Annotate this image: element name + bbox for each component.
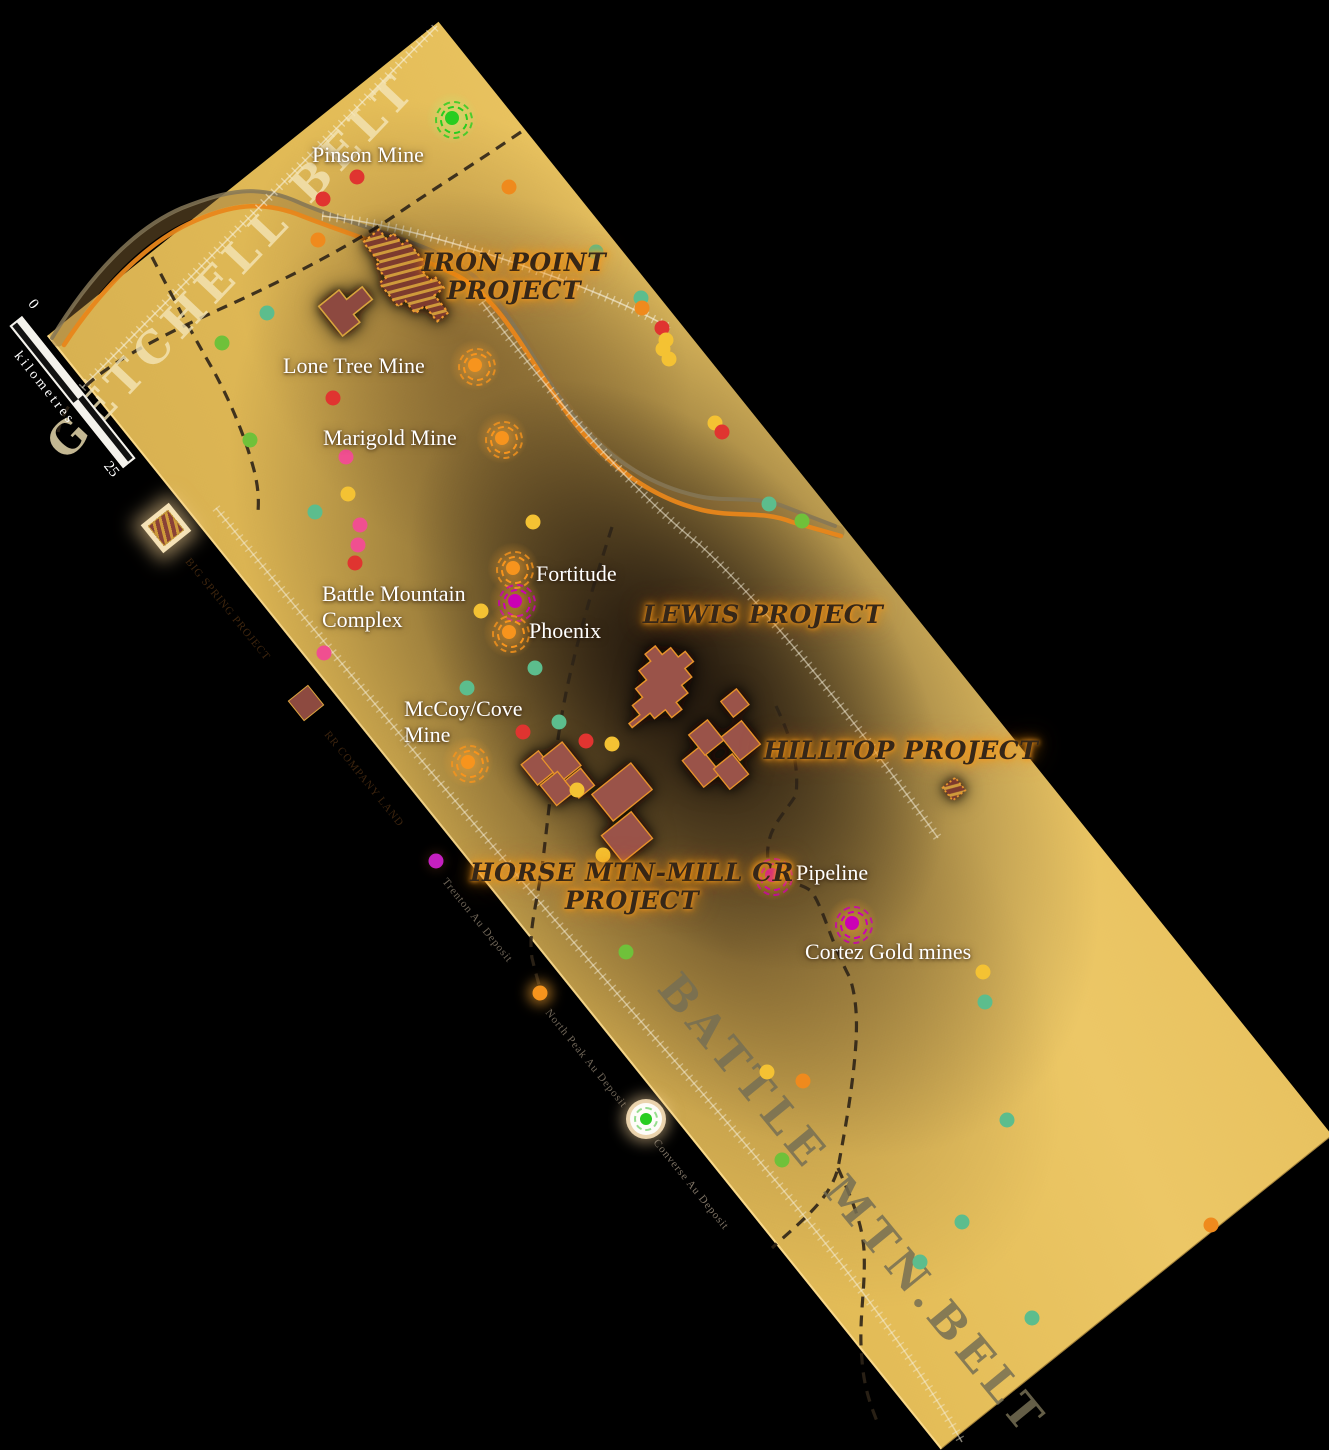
mccoy-cove-label: McCoy/CoveMine <box>404 696 523 749</box>
deposit-dot-red <box>348 556 363 571</box>
deposit-dot-orange <box>311 233 326 248</box>
deposit-dot-teal <box>528 661 543 676</box>
marker-core <box>506 561 520 575</box>
deposit-dot-teal <box>460 681 475 696</box>
deposit-dot-teal <box>762 497 777 512</box>
deposit-dot-teal <box>955 1215 970 1230</box>
marker-core <box>468 358 482 372</box>
horse-mtn-mill-cr-project-label: HORSE MTN-MILL CRPROJECT <box>470 859 794 915</box>
deposit-dot-green <box>795 514 810 529</box>
marigold-label: Marigold Mine <box>323 425 457 451</box>
deposit-dot-red <box>326 391 341 406</box>
deposit-dot-teal <box>552 715 567 730</box>
lewis-claims[interactable] <box>601 634 712 741</box>
deposit-dot-green <box>215 336 230 351</box>
deposit-dot-pink <box>339 450 354 465</box>
marker-core <box>461 755 475 769</box>
deposit-dot-red <box>350 170 365 185</box>
deposit-dot-orange <box>635 301 650 316</box>
disc-center <box>640 1113 652 1125</box>
map-canvas: GETCHELL BELTBATTLE MTN.BELTPinson MineL… <box>0 0 1329 1450</box>
deposit-dot-yellow <box>662 352 677 367</box>
marker-core <box>445 111 459 125</box>
deposit-dot-teal <box>308 505 323 520</box>
marker-core <box>845 916 859 930</box>
map-linework <box>0 0 1329 1450</box>
deposit-dot-yellow <box>526 515 541 530</box>
battle-mountain-complex-label: Battle MountainComplex <box>322 581 466 634</box>
deposit-dot-green <box>775 1153 790 1168</box>
deposit-dot-orange <box>796 1074 811 1089</box>
deposit-dot-teal <box>1000 1113 1015 1128</box>
deposit-dot-pink <box>351 538 366 553</box>
deposit-dot-red <box>316 192 331 207</box>
deposit-dot-teal <box>913 1255 928 1270</box>
deposit-dot-teal <box>260 306 275 321</box>
small-claim-square[interactable] <box>943 778 965 800</box>
edge-orange[interactable] <box>533 986 548 1001</box>
cortez-label: Cortez Gold mines <box>805 939 971 965</box>
deposit-dot-orange <box>502 180 517 195</box>
deposit-dot-yellow <box>760 1065 775 1080</box>
deposit-dot-green <box>243 433 258 448</box>
fortitude-label: Fortitude <box>536 561 617 587</box>
deposit-dot-green <box>619 945 634 960</box>
deposit-dot-yellow <box>976 965 991 980</box>
phoenix-label: Phoenix <box>529 618 601 644</box>
deposit-dot-red <box>715 425 730 440</box>
lewis-project-label: LEWIS PROJECT <box>643 601 883 629</box>
deposit-dot-yellow <box>570 783 585 798</box>
marker-core <box>495 431 509 445</box>
iron-point-project-label: IRON POINTPROJECT <box>422 249 607 305</box>
iron-point-west-claim[interactable] <box>319 278 379 336</box>
edge-white-green[interactable] <box>630 1103 662 1135</box>
deposit-dot-pink <box>317 646 332 661</box>
edge-magenta[interactable] <box>429 854 444 869</box>
deposit-dot-teal <box>1025 1311 1040 1326</box>
pipeline-label: Pipeline <box>796 860 868 886</box>
pinson-label: Pinson Mine <box>312 142 424 168</box>
deposit-dot-orange <box>1204 1218 1219 1233</box>
deposit-dot-yellow <box>605 737 620 752</box>
marker-core <box>502 625 516 639</box>
deposit-dot-pink <box>353 518 368 533</box>
deposit-dot-red <box>579 734 594 749</box>
horse-mtn-claims-b[interactable] <box>592 763 652 821</box>
deposit-dot-teal <box>978 995 993 1010</box>
hilltop-project-label: HILLTOP PROJECT <box>764 737 1039 765</box>
lone-tree-label: Lone Tree Mine <box>283 353 425 379</box>
deposit-dot-yellow <box>341 487 356 502</box>
